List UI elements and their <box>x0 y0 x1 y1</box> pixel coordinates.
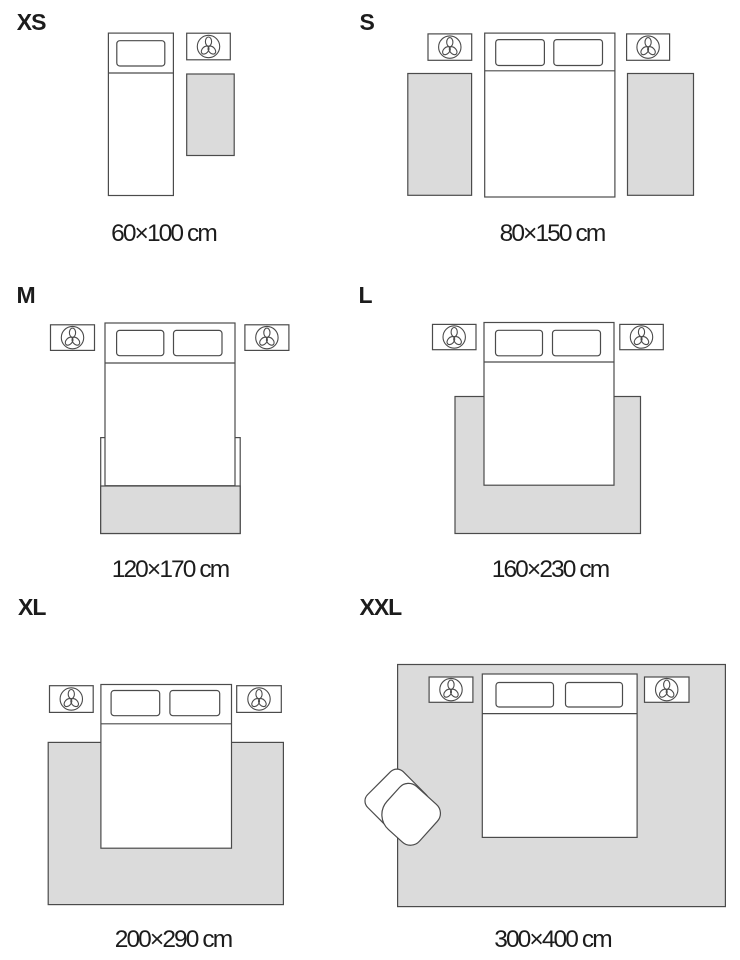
svg-text:80×150 cm: 80×150 cm <box>500 220 605 247</box>
svg-text:300×400 cm: 300×400 cm <box>494 926 611 953</box>
svg-text:60×100 cm: 60×100 cm <box>111 220 216 247</box>
svg-text:XXL: XXL <box>360 594 403 620</box>
svg-text:200×290 cm: 200×290 cm <box>115 926 232 953</box>
svg-text:160×230 cm: 160×230 cm <box>492 556 609 583</box>
svg-text:XL: XL <box>18 594 46 620</box>
svg-text:S: S <box>360 9 375 35</box>
svg-text:120×170 cm: 120×170 cm <box>112 556 229 583</box>
svg-text:L: L <box>359 282 373 308</box>
svg-text:XS: XS <box>17 9 46 35</box>
svg-text:M: M <box>17 282 35 308</box>
